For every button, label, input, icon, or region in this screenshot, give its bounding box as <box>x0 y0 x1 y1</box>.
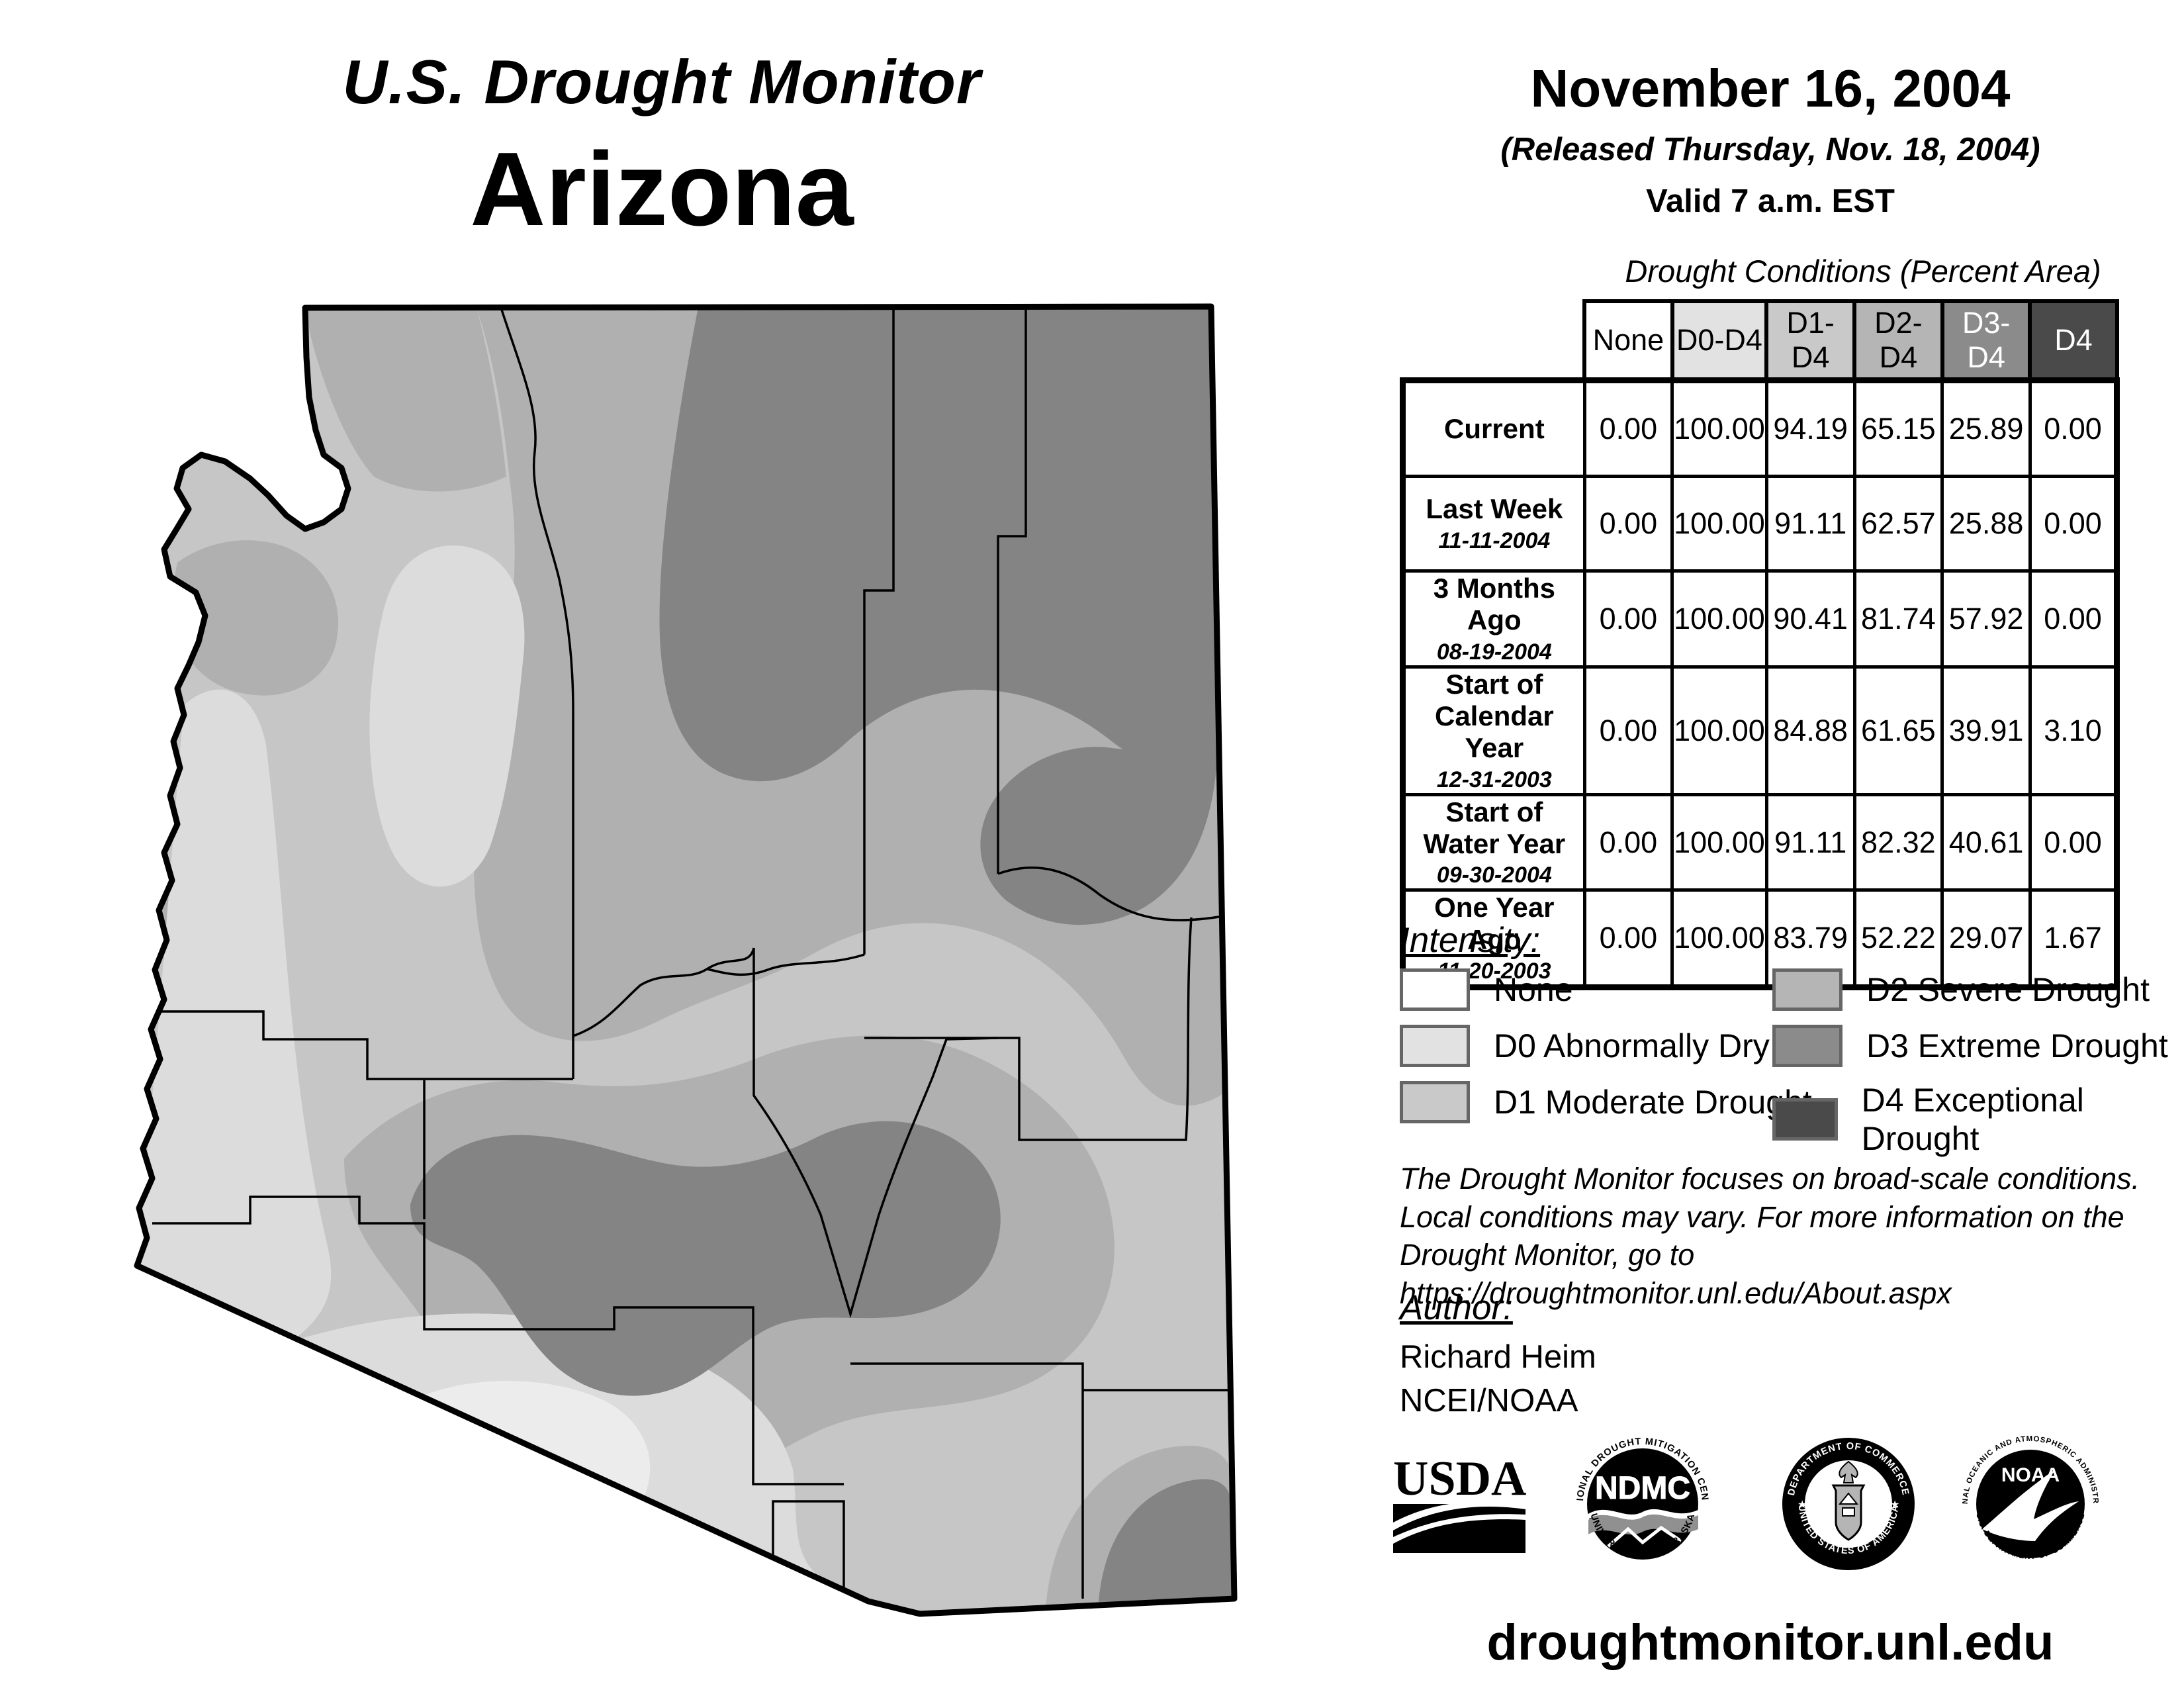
cell-value: 100.00 <box>1672 571 1767 667</box>
author-heading: Author: <box>1400 1288 1513 1328</box>
row-date: 08-19-2004 <box>1406 639 1583 665</box>
legend-label: D3 Extreme Drought <box>1866 1027 2168 1065</box>
cell-value: 3.10 <box>2030 667 2116 794</box>
cell-value: 39.91 <box>1942 667 2030 794</box>
cell-value: 0.00 <box>2030 381 2116 477</box>
legend-swatch-d1 <box>1400 1081 1470 1123</box>
col-header-d1-d4: D1-D4 <box>1766 301 1854 381</box>
row-label-text: Start of Water Year <box>1423 796 1565 859</box>
cell-value: 91.11 <box>1766 477 1854 571</box>
cell-value: 65.15 <box>1854 381 1942 477</box>
noaa-logo: NOAA NATIONAL OCEANIC AND ATMOSPHERIC AD… <box>1956 1430 2105 1578</box>
ndmc-logo-text: NDMC <box>1595 1471 1690 1506</box>
legend-label: None <box>1494 970 1573 1009</box>
title-block: U.S. Drought Monitor Arizona <box>165 46 1158 250</box>
row-label-3-months-ago: 3 Months Ago08-19-2004 <box>1403 571 1585 667</box>
legend-swatch-d2 <box>1772 968 1843 1011</box>
report-title: U.S. Drought Monitor <box>165 46 1158 118</box>
cell-value: 94.19 <box>1766 381 1854 477</box>
noaa-logo-text: NOAA <box>2001 1464 2060 1486</box>
legend-label: D4 Exceptional Drought <box>1862 1081 2184 1158</box>
disclaimer-text: The Drought Monitor focuses on broad-sca… <box>1400 1160 2184 1312</box>
cell-value: 0.00 <box>2030 571 2116 667</box>
table-row: Start of Calendar Year12-31-2003 0.00 10… <box>1403 667 2117 794</box>
header-corner-cell <box>1403 301 1585 381</box>
state-name-title: Arizona <box>165 130 1158 250</box>
legend-swatch-none <box>1400 968 1470 1011</box>
cell-value: 57.92 <box>1942 571 2030 667</box>
legend-item-d3: D3 Extreme Drought <box>1772 1025 2168 1067</box>
cell-value: 100.00 <box>1672 381 1767 477</box>
cell-value: 0.00 <box>1584 477 1672 571</box>
table-row: 3 Months Ago08-19-2004 0.00 100.00 90.41… <box>1403 571 2117 667</box>
cell-value: 100.00 <box>1672 667 1767 794</box>
cell-value: 91.11 <box>1766 794 1854 890</box>
cell-value: 0.00 <box>1584 667 1672 794</box>
cell-value: 100.00 <box>1672 794 1767 890</box>
cell-value: 100.00 <box>1672 890 1767 988</box>
col-header-d2-d4: D2-D4 <box>1854 301 1942 381</box>
legend-swatch-d3 <box>1772 1025 1843 1067</box>
row-date: 09-30-2004 <box>1406 863 1583 888</box>
col-header-d4: D4 <box>2030 301 2116 381</box>
cell-value: 0.00 <box>1584 571 1672 667</box>
row-label-start-calendar-year: Start of Calendar Year12-31-2003 <box>1403 667 1585 794</box>
cell-value: 0.00 <box>1584 381 1672 477</box>
row-label-current: Current <box>1403 381 1585 477</box>
cell-value: 61.65 <box>1854 667 1942 794</box>
drought-conditions-table: None D0-D4 D1-D4 D2-D4 D3-D4 D4 Current … <box>1400 299 2120 990</box>
cell-value: 0.00 <box>1584 890 1672 988</box>
col-header-none: None <box>1584 301 1672 381</box>
arizona-drought-map <box>66 278 1291 1635</box>
legend-label: D2 Severe Drought <box>1866 970 2150 1009</box>
legend-label: D0 Abnormally Dry <box>1494 1027 1770 1065</box>
cell-value: 90.41 <box>1766 571 1854 667</box>
author-organization: NCEI/NOAA <box>1400 1382 1578 1419</box>
cell-value: 25.89 <box>1942 381 2030 477</box>
doc-logo: ★ ★ DEPARTMENT OF COMMERCE UNITED STATES… <box>1779 1430 1918 1578</box>
table-header-row: None D0-D4 D1-D4 D2-D4 D3-D4 D4 <box>1403 301 2117 381</box>
row-label-text: Current <box>1444 413 1545 444</box>
usda-logo: USDA <box>1393 1454 1532 1560</box>
col-header-d3-d4: D3-D4 <box>1942 301 2030 381</box>
cell-value: 40.61 <box>1942 794 2030 890</box>
disclaimer-line: Drought Monitor, go to https://droughtmo… <box>1400 1236 2184 1312</box>
cell-value: 0.00 <box>2030 477 2116 571</box>
intensity-heading: Intensity: <box>1400 920 1540 961</box>
cell-value: 100.00 <box>1672 477 1767 571</box>
released-date: (Released Thursday, Nov. 18, 2004) <box>1400 131 2141 168</box>
legend-label: D1 Moderate Drought <box>1494 1083 1812 1121</box>
cell-value: 0.00 <box>2030 794 2116 890</box>
cell-value: 62.57 <box>1854 477 1942 571</box>
footer-url: droughtmonitor.unl.edu <box>1400 1614 2141 1671</box>
row-date: 11-11-2004 <box>1406 528 1583 554</box>
col-header-d0-d4: D0-D4 <box>1672 301 1767 381</box>
ndmc-logo: NDMC NATIONAL DROUGHT MITIGATION CENTER … <box>1569 1430 1717 1578</box>
valid-time: Valid 7 a.m. EST <box>1400 183 2141 220</box>
legend-swatch-d0 <box>1400 1025 1470 1067</box>
disclaimer-line: The Drought Monitor focuses on broad-sca… <box>1400 1160 2184 1198</box>
legend-item-d1: D1 Moderate Drought <box>1400 1081 1812 1123</box>
row-label-text: Last Week <box>1426 493 1563 524</box>
cell-value: 0.00 <box>1584 794 1672 890</box>
row-label-start-water-year: Start of Water Year09-30-2004 <box>1403 794 1585 890</box>
legend-item-d0: D0 Abnormally Dry <box>1400 1025 1770 1067</box>
legend-item-d2: D2 Severe Drought <box>1772 968 2150 1011</box>
table-row: Current 0.00 100.00 94.19 65.15 25.89 0.… <box>1403 381 2117 477</box>
table-caption: Drought Conditions (Percent Area) <box>1585 253 2141 289</box>
legend-item-none: None <box>1400 968 1573 1011</box>
usda-logo-text: USDA <box>1393 1454 1526 1506</box>
row-date: 12-31-2003 <box>1406 767 1583 793</box>
table-row: Last Week11-11-2004 0.00 100.00 91.11 62… <box>1403 477 2117 571</box>
row-label-text: Start of Calendar Year <box>1435 669 1554 764</box>
author-name: Richard Heim <box>1400 1338 1596 1376</box>
legend-swatch-d4 <box>1772 1098 1838 1141</box>
cell-value: 84.88 <box>1766 667 1854 794</box>
disclaimer-line: Local conditions may vary. For more info… <box>1400 1198 2184 1237</box>
row-label-text: 3 Months Ago <box>1433 573 1555 635</box>
date-block: November 16, 2004 (Released Thursday, No… <box>1400 58 2141 220</box>
row-label-last-week: Last Week11-11-2004 <box>1403 477 1585 571</box>
table-row: Start of Water Year09-30-2004 0.00 100.0… <box>1403 794 2117 890</box>
legend-item-d4: D4 Exceptional Drought <box>1772 1081 2184 1158</box>
map-date: November 16, 2004 <box>1400 58 2141 119</box>
cell-value: 82.32 <box>1854 794 1942 890</box>
cell-value: 25.88 <box>1942 477 2030 571</box>
cell-value: 81.74 <box>1854 571 1942 667</box>
